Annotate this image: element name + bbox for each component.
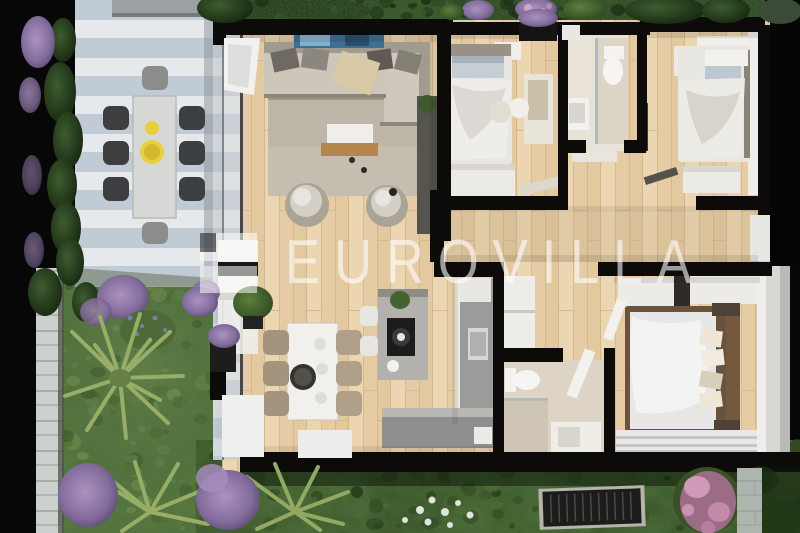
svg-text:EUROVILLA: EUROVILLA: [285, 228, 705, 297]
